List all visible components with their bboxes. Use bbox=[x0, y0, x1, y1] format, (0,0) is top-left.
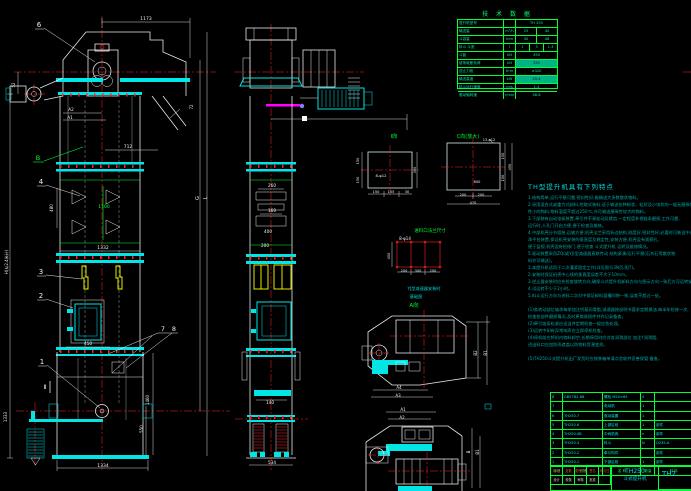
bom-row: 7电动机1配套 bbox=[551, 402, 691, 411]
dim-label: 1173 bbox=[140, 16, 152, 22]
dim-label: 470 bbox=[470, 201, 477, 205]
dim-label: 1 bbox=[40, 358, 44, 366]
bom-row: 5TH250.6上部区段1部件 bbox=[551, 421, 691, 430]
tech-data-table: 提升机型号TH 250输送量m³/h2540斗容量mm3048料斗 斗宽l131… bbox=[457, 19, 558, 89]
note-line: 性小的物料,物料温度不超过250℃,亦可输送磨琢性较大的物料。 bbox=[528, 208, 691, 215]
dim-label: 13-φ12 bbox=[483, 138, 495, 142]
dim-label: C向(放大) bbox=[457, 133, 479, 140]
dim-label: 480 bbox=[49, 204, 54, 212]
dim-label: 150 bbox=[501, 175, 505, 182]
dim-label: 8-φ14 bbox=[399, 236, 411, 241]
note-line bbox=[528, 348, 691, 355]
title-block-revision-grid: 标记处数更改文件号签名年月日设计校核审核批准 bbox=[551, 467, 612, 490]
dim-label: 8-φ12 bbox=[375, 173, 387, 178]
dim-label: 200 bbox=[401, 269, 408, 273]
note-line: 3.逆止器安装时应先检查旋转方向,确保斗式提升机卸料方向与图示方向一致后方可运转… bbox=[528, 278, 691, 285]
dim-label: I向 bbox=[390, 132, 397, 140]
dim-label: 1460 bbox=[145, 394, 150, 405]
dim-label: B bbox=[466, 450, 471, 453]
dim-label: G bbox=[195, 196, 201, 200]
dim-label: 200 bbox=[460, 193, 467, 197]
dim-label: 1100 bbox=[98, 204, 110, 210]
dimension-labels-layer: 1173652A2A1712B72448011001332H(从2.4米计)GL… bbox=[3, 16, 512, 469]
dim-label: B1 bbox=[475, 449, 480, 455]
tech-table-row: 斗容量mm3048 bbox=[458, 35, 557, 43]
note-line: 4.中部机壳分节组装,运输方便;机壳法兰采用折边结构,刚度好,密封性好;必要时可… bbox=[528, 229, 691, 236]
bom-row: 8GB5782-86螺栓 M20×654标准件 bbox=[551, 393, 691, 402]
cad-drawing-screen: 1173652A2A1712B72448011001332H(从2.4米计)GL… bbox=[0, 0, 691, 491]
dim-label: A2 bbox=[68, 107, 74, 112]
bom-row: 3TH250.3料斗NQ235-A204×2 bbox=[551, 439, 691, 448]
note-line: (4)停机前应将机内物料卸空,长期停用时应对各润滑部位 加注Y润滑脂, bbox=[528, 334, 691, 341]
dim-label: A2 bbox=[399, 415, 405, 420]
note-line: 2.安装时保证机壳中心线的垂直度误差不大于10mm。 bbox=[528, 271, 691, 278]
dim-label: 200 bbox=[261, 243, 269, 248]
dim-label: 450 bbox=[387, 253, 391, 260]
dim-label: Ⅱ bbox=[44, 384, 47, 391]
drawing-model: TH250 bbox=[612, 467, 658, 476]
note-line: 1.本提升机适用于二次灌浆固定工作(详见图号3N页,图7)。 bbox=[528, 264, 691, 271]
note-line: 5.驱动装置采用ZQ(或YJ)型减速器直联传动 结构紧凑/运行平稳(石灰石等散状… bbox=[528, 250, 691, 257]
dim-label: 基础图 bbox=[410, 293, 423, 300]
dim-label: A1 bbox=[67, 115, 73, 120]
plan-view-a bbox=[362, 310, 491, 409]
note-line: (1)各转动部位轴承每季加注钙基润滑脂,减速器按说明书要求定期换油,每半年检修一… bbox=[528, 306, 691, 313]
dim-label: 450 bbox=[508, 164, 512, 171]
title-block: 标记处数更改文件号签名年月日设计校核审核批准 TH250 斗式提升机 TH2 bbox=[550, 466, 691, 491]
dim-label: A向 bbox=[409, 301, 418, 309]
dim-label: 30 bbox=[405, 190, 409, 194]
tech-table-row: 斗距kN450 bbox=[458, 51, 557, 59]
title-block-center: TH250 斗式提升机 bbox=[612, 467, 659, 490]
parts-list-table: 8GB5782-86螺栓 M20×654标准件7电动机1配套6TH250.7驱动… bbox=[550, 392, 691, 466]
dim-label: 300 bbox=[413, 167, 417, 174]
note-line: 便于监视,机壳设有检修门,便于检查 斗式提升机 运转及维修情况。 bbox=[528, 243, 691, 250]
tech-table-row: 提升机型号TH 250 bbox=[458, 20, 557, 27]
drawing-number: TH2 bbox=[659, 467, 691, 490]
dim-label: L bbox=[203, 196, 209, 199]
note-line: 4.试运转不少于2小时。 bbox=[528, 285, 691, 292]
dim-label: 400 bbox=[264, 229, 272, 234]
note-line: 检查各部件磨损情况,及时更换易损件并作记录备查。 bbox=[528, 313, 691, 320]
dim-label: 534 bbox=[268, 460, 276, 465]
tech-table-row: 输送高度kW25.4 bbox=[458, 75, 557, 83]
bom-row: 4TH250.4B中间机壳n部件 bbox=[551, 430, 691, 439]
note-line: (3)运转中如有异常响声应立即停机检查。 bbox=[528, 327, 691, 334]
dim-label: 6 bbox=[37, 21, 42, 29]
note-line: (2)牵引链条松紧应适当并定期检查一般应急处理。 bbox=[528, 320, 691, 327]
title-block-field-row: 设计校核审核批准 bbox=[551, 476, 611, 485]
dim-label: 600 bbox=[474, 180, 481, 184]
dim-label: 200 bbox=[478, 193, 485, 197]
dim-label: 7 bbox=[161, 325, 165, 333]
plan-view-b bbox=[366, 412, 480, 491]
tech-table-row: 料斗 斗宽l131.3 bbox=[458, 43, 557, 51]
dim-label: H(从2.4米计) bbox=[3, 249, 9, 274]
dim-label: 160 bbox=[268, 208, 276, 213]
dim-label: B1 bbox=[483, 350, 488, 356]
dim-label: 4 bbox=[39, 178, 44, 186]
note-line bbox=[528, 299, 691, 306]
dim-label: 300 bbox=[415, 269, 422, 273]
dim-label: A4 bbox=[396, 385, 402, 390]
bom-row: 2TH250.2牵引构件部件 bbox=[551, 449, 691, 458]
dim-label: 1333 bbox=[3, 411, 8, 422]
dim-label: 进料口法兰尺寸 bbox=[414, 227, 446, 234]
dim-label: 52 bbox=[11, 82, 16, 88]
note-line: 5.料斗运行方向与进料二次对中保证卸料溜槽间隙一致,误差不超过一处。 bbox=[528, 292, 691, 299]
dim-label: 450 bbox=[84, 341, 93, 347]
detail-view-c bbox=[441, 136, 512, 204]
bom-row: 6TH250.7驱动装置1部件 bbox=[551, 412, 691, 421]
main-elevation bbox=[6, 18, 207, 471]
dim-label: 72 bbox=[189, 104, 194, 110]
dim-label: A1 bbox=[400, 407, 406, 412]
tech-table-title: 技 术 数 据 bbox=[457, 9, 558, 18]
dim-label: A3 bbox=[395, 393, 401, 398]
note-line: (5)TH250斗式提升机出厂发货时应按装箱单清点验收并妥善保管 备查。 bbox=[528, 355, 691, 362]
dim-label: 550 bbox=[139, 425, 144, 433]
dim-label: 155 bbox=[388, 190, 395, 194]
dim-label: YJ型减速器安装时 bbox=[406, 285, 441, 292]
title-block-field-row: 标记处数更改文件号签名年月日 bbox=[551, 467, 611, 476]
dim-label: 200 bbox=[430, 269, 437, 273]
dim-label: B2 bbox=[473, 350, 478, 356]
dim-label: 140 bbox=[266, 400, 274, 405]
note-line: 1.结构简单,运行平稳可靠,密封性好,能输送大多数散状物料。 bbox=[528, 194, 691, 201]
dim-label: 260 bbox=[268, 183, 276, 188]
tech-table-row: 链条破断负荷kN250 bbox=[458, 59, 557, 67]
dim-label: 2 bbox=[39, 292, 43, 300]
dim-label: 150 bbox=[356, 158, 360, 165]
dim-label: 1332 bbox=[97, 245, 109, 251]
note-line: 2.采用混合式或重力式卸料,挖取式装料,适于输送各种粉状、粒状及小块状的一般无磨… bbox=[528, 201, 691, 208]
note-line: 进出料口应加防雨遮盖以防物料受潮变质。 bbox=[528, 341, 691, 348]
dim-label: 1334 bbox=[97, 463, 109, 469]
dim-label: 150 bbox=[373, 190, 380, 194]
dim-label: 712 bbox=[124, 144, 133, 150]
dim-label: 150 bbox=[356, 177, 360, 184]
note-line: 料亦可输送)。 bbox=[528, 257, 691, 264]
dim-label: B bbox=[36, 154, 40, 162]
notes-panel: TH型提升机具有下列特点 1.结构简单,运行平稳可靠,密封性好,能输送大多数散状… bbox=[528, 181, 691, 362]
tech-table-row: 驱动轴转速r/min48.8 bbox=[458, 91, 557, 99]
note-line: 运行时,人孔门开启方便,便于检查及维修。 bbox=[528, 222, 691, 229]
note-line: 承平台装置,保证机壳安装的垂直度及稳定性,安装方便,机壳设有观察孔, bbox=[528, 236, 691, 243]
tech-table-row: 料斗运行速度m/s1.4 bbox=[458, 83, 557, 91]
note-line: 3.下部装有自动张紧装置,牵引件不易松动及跳齿,一定程度补偿链条磨损,工作可靠, bbox=[528, 215, 691, 222]
dim-label: 150 bbox=[501, 153, 505, 160]
dim-label: 3 bbox=[39, 268, 43, 276]
drawing-name: 斗式提升机 bbox=[612, 476, 658, 484]
tech-table-row: 输送量m³/h2540 bbox=[458, 27, 557, 35]
tech-table-row: 逆止力矩N·m≥320 bbox=[458, 67, 557, 75]
dim-label: 8 bbox=[172, 325, 176, 333]
notes-heading: TH型提升机具有下列特点 bbox=[528, 181, 691, 191]
